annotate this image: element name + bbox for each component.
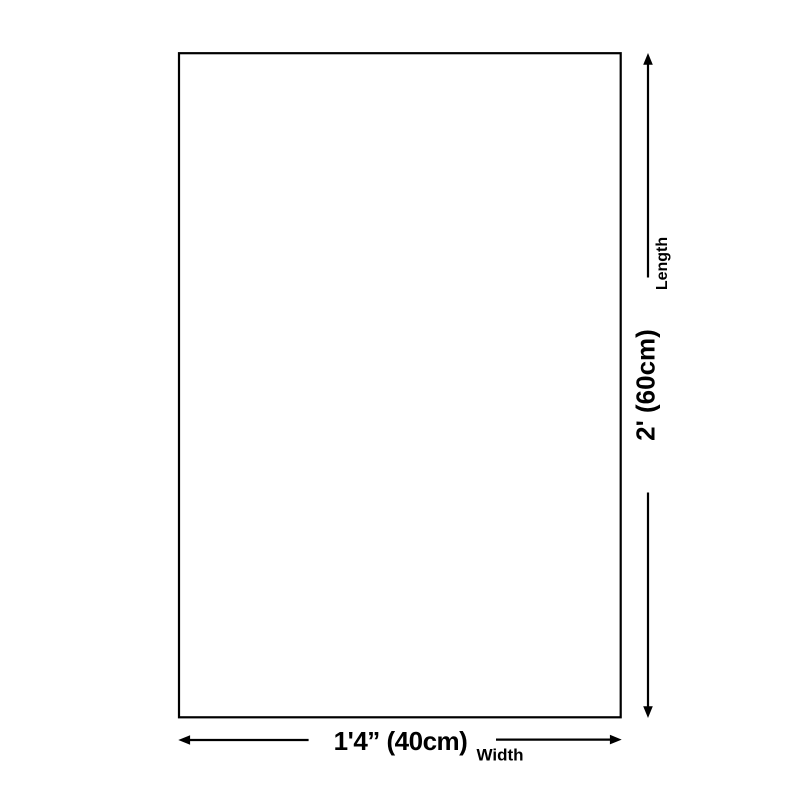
svg-text:1'4” (40cm): 1'4” (40cm) — [334, 726, 468, 756]
svg-text:Width: Width — [476, 746, 523, 765]
svg-text:Length: Length — [654, 237, 671, 290]
svg-text:2' (60cm): 2' (60cm) — [631, 329, 661, 441]
